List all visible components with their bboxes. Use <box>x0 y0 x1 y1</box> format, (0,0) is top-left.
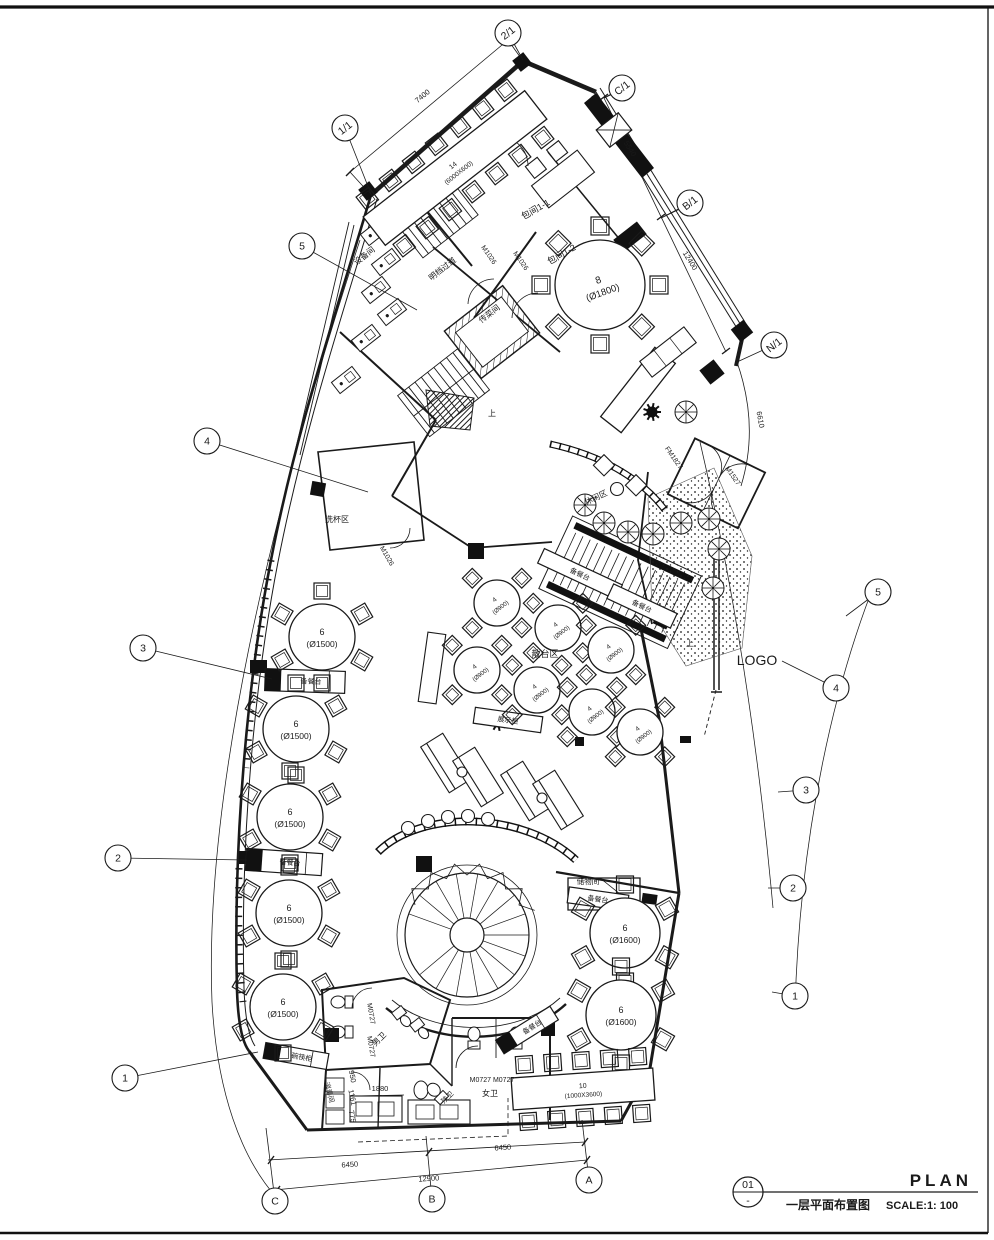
drawing-text: (Ø1500) <box>267 1009 298 1019</box>
private-room-desk <box>520 135 595 208</box>
chair <box>508 144 530 166</box>
grid-bubble: 5 <box>846 579 891 616</box>
tree-icon <box>708 538 730 560</box>
chair <box>485 162 507 184</box>
service-station <box>377 298 406 325</box>
tree-icon <box>702 577 724 599</box>
chair <box>351 603 373 625</box>
drawing-text: 3 <box>803 785 809 797</box>
drawing-text: 6 <box>618 1005 623 1015</box>
room-label: 上 <box>686 639 694 648</box>
service-station <box>331 366 360 393</box>
tree-icon <box>670 512 692 534</box>
food-pass-room <box>444 286 539 379</box>
long-dining-table: 10(1000X3600) <box>510 1047 657 1131</box>
chair <box>492 635 512 655</box>
logo-label: LOGO <box>737 652 778 668</box>
room-label: M1026 <box>378 545 395 567</box>
dimension-label: 950 <box>347 1069 358 1083</box>
round-dining-table: 4(Ø900) <box>462 568 531 637</box>
grid-bubble: C/1 <box>604 75 635 101</box>
chair <box>492 685 512 705</box>
dimension-label: 6450 <box>494 1142 511 1152</box>
chair <box>567 979 590 1002</box>
detail-number: 01 <box>742 1179 754 1191</box>
drawing-text: 6 <box>293 719 298 729</box>
chair <box>439 198 461 220</box>
tree-icon <box>698 508 720 530</box>
tree-icon <box>675 401 697 423</box>
floor-plan-drawing: 备餐台备餐台备餐台备餐台备餐台备餐台碗筷柜展示柜 8(Ø1800)6(Ø1500… <box>0 0 994 1240</box>
dimension-label: 6610 <box>755 411 767 429</box>
planter-bench <box>418 632 446 704</box>
room-label: M1527 <box>723 465 741 487</box>
dimension-label: 12900 <box>418 1173 439 1183</box>
chair <box>314 583 330 599</box>
drawing-text: 10 <box>579 1083 587 1091</box>
drawing-text: (Ø1500) <box>273 915 304 925</box>
tree-icon <box>617 521 639 543</box>
dimension-label: 775 <box>347 1109 358 1123</box>
plan-title-en: PLAN <box>910 1171 972 1190</box>
floor-plan-sheet: 备餐台备餐台备餐台备餐台备餐台备餐台碗筷柜展示柜 8(Ø1800)6(Ø1500… <box>0 0 994 1240</box>
chair <box>557 727 577 747</box>
drawing-text: 5 <box>875 587 881 599</box>
grid-bubble: 2 <box>105 845 247 871</box>
chair <box>319 783 341 805</box>
service-station <box>361 276 390 303</box>
chair <box>532 276 550 294</box>
detail-number-sub: - <box>746 1195 750 1207</box>
drawing-text: A <box>585 1175 592 1187</box>
round-dining-table: 8(Ø1800) <box>532 217 668 353</box>
title-block: 01 - PLAN 一层平面布置图 SCALE:1: 100 <box>733 1171 978 1212</box>
chair <box>282 763 298 779</box>
room-label: 上 <box>488 409 496 418</box>
potted-plant-icon <box>644 403 661 421</box>
chair <box>629 314 654 339</box>
room-label: 明档过道 <box>426 255 457 283</box>
drawing-text: (Ø1500) <box>306 639 337 649</box>
chair <box>325 695 347 717</box>
drawing-text: (Ø1500) <box>274 819 305 829</box>
room-label: 女卫 <box>482 1088 498 1098</box>
dimension-label: 12400 <box>681 249 700 271</box>
chair <box>607 677 627 697</box>
round-dining-table: 4(Ø900) <box>557 677 626 746</box>
chair <box>605 747 625 767</box>
chair <box>318 879 340 901</box>
chair <box>271 603 293 625</box>
drawing-text: C <box>271 1196 279 1208</box>
grid-bubble: 1 <box>112 1052 258 1091</box>
chair <box>462 568 482 588</box>
chair <box>546 314 571 339</box>
grid-bubble: C <box>262 1128 288 1214</box>
drawing-text: 1 <box>792 991 798 1003</box>
cup-washing-room <box>318 442 424 550</box>
drawing-text: 4 <box>204 436 210 448</box>
chair <box>512 618 532 638</box>
chair <box>576 665 596 685</box>
drawing-text: 4 <box>833 683 839 695</box>
drawing-text: B <box>428 1194 435 1206</box>
chair <box>318 925 340 947</box>
grid-bubble: 1 <box>772 983 808 1009</box>
chair <box>442 685 462 705</box>
chair <box>571 946 594 969</box>
room-label: M1026 <box>479 244 497 266</box>
service-counter: 碗筷柜 <box>263 1043 329 1070</box>
chair <box>591 335 609 353</box>
chair <box>512 568 532 588</box>
chair <box>239 829 261 851</box>
drawing-text: 6 <box>280 997 285 1007</box>
drawing-text: (Ø1600) <box>609 935 640 945</box>
drawing-text: 6 <box>622 923 627 933</box>
dimension-label: 6450 <box>341 1159 358 1169</box>
plan-title-cn: 一层平面布置图 <box>786 1197 870 1212</box>
grid-bubble: 4 <box>782 661 849 701</box>
service-stations <box>331 218 406 393</box>
tree-icon <box>642 523 664 545</box>
drawing-text: 6 <box>287 807 292 817</box>
chair <box>271 649 293 671</box>
drawing-text: 3 <box>140 643 146 655</box>
tree-icon <box>593 512 615 534</box>
round-dining-table: 6(Ø1500) <box>238 859 340 967</box>
room-label: FM1827 <box>663 446 684 471</box>
chair <box>351 649 373 671</box>
chair <box>325 741 347 763</box>
grid-bubble: 2/1 <box>495 20 523 60</box>
plan-scale: SCALE:1: 100 <box>886 1200 958 1212</box>
room-label: M0727 M0727 <box>470 1077 515 1084</box>
chair <box>626 665 646 685</box>
chair <box>567 1028 590 1051</box>
chair <box>591 217 609 235</box>
grid-bubble: B/1 <box>661 190 703 218</box>
service-counter: 备餐台 <box>265 669 346 694</box>
chair <box>462 180 484 202</box>
chair <box>288 767 304 783</box>
drawing-text: 2 <box>115 853 121 865</box>
round-dining-table: 4(Ø900) <box>442 635 511 704</box>
dimension-label: 1880 <box>372 1084 389 1093</box>
chair <box>531 126 553 148</box>
chair <box>462 618 482 638</box>
drawing-text: 6 <box>319 627 324 637</box>
chair <box>650 276 668 294</box>
chair <box>275 953 291 969</box>
room-label: 洗杯区 <box>325 514 349 524</box>
grid-bubble: 1/1 <box>332 115 371 194</box>
drawing-text: 5 <box>299 241 305 253</box>
room-label: 包间1-1 <box>519 196 551 221</box>
drawing-text: (Ø1600) <box>605 1017 636 1027</box>
room-label: 储物间 <box>577 876 600 886</box>
grid-bubble: 4 <box>194 428 368 492</box>
drawing-text: (Ø1500) <box>280 731 311 741</box>
drawing-text: 1 <box>122 1073 128 1085</box>
chair <box>471 97 493 119</box>
round-dining-table: 6(Ø1500) <box>232 953 334 1061</box>
chair <box>502 655 522 675</box>
chair <box>523 593 543 613</box>
grid-bubble: 2 <box>768 875 806 901</box>
room-label: 散台区 <box>531 648 558 659</box>
drawing-text: 2 <box>790 883 796 895</box>
dimension-label: 1161 <box>346 1089 358 1107</box>
drawing-text: 6 <box>286 903 291 913</box>
grid-bubble: 3 <box>778 777 819 803</box>
chair <box>319 829 341 851</box>
dimension-label: 7400 <box>413 87 432 105</box>
room-label: M0727 <box>365 1003 376 1025</box>
